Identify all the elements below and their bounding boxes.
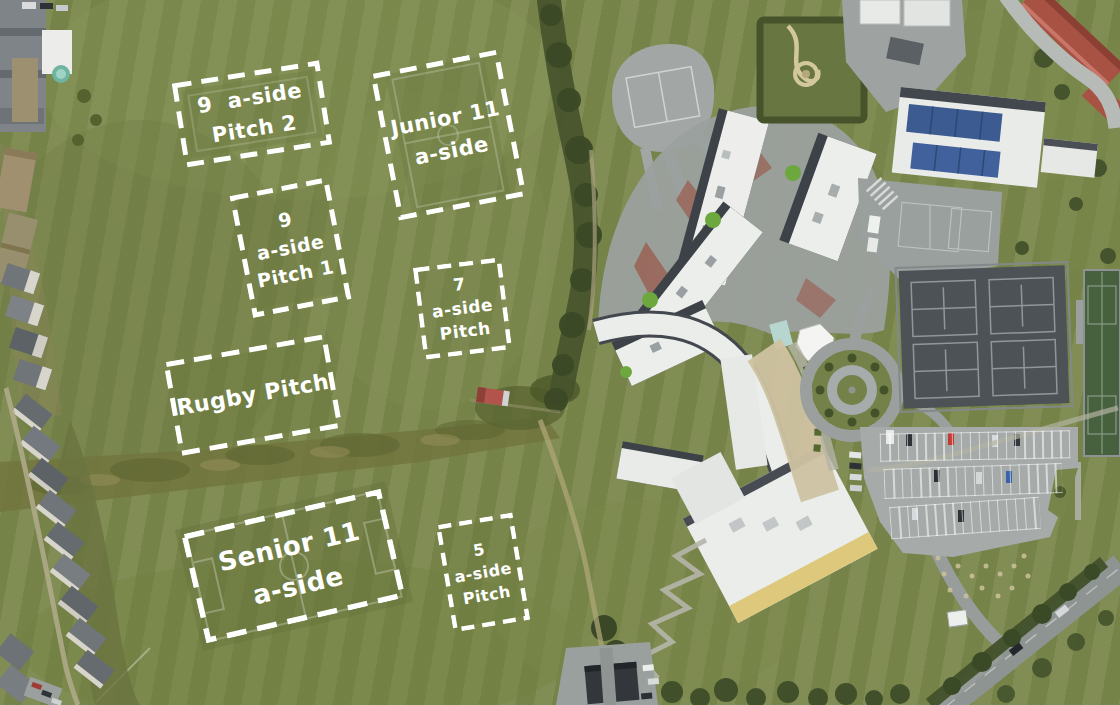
south-yard <box>556 642 660 705</box>
tennis-courts <box>896 262 1073 412</box>
aerial-map: 9 a-side Pitch 2 Junior 11 a-side 9 a-si… <box>0 0 1120 705</box>
aerial-basemap <box>0 0 1120 705</box>
pitch-annotation-7-a-side: 7 a-side Pitch <box>413 257 513 360</box>
main-road <box>930 554 1120 705</box>
visitor-parking <box>847 452 865 492</box>
pitch-label: 9 a-side Pitch 1 <box>244 200 336 296</box>
parking-row-stripes <box>884 463 1063 499</box>
pitch-label: 5 a-side Pitch <box>449 533 517 611</box>
astro-pitch <box>1076 270 1120 520</box>
pitch-label: 7 a-side Pitch <box>428 269 497 347</box>
roadside-hut <box>947 610 968 627</box>
parking-row-stripes <box>880 430 1070 461</box>
pitch-annotation-junior-11-a-side: Junior 11 a-side <box>370 49 527 221</box>
